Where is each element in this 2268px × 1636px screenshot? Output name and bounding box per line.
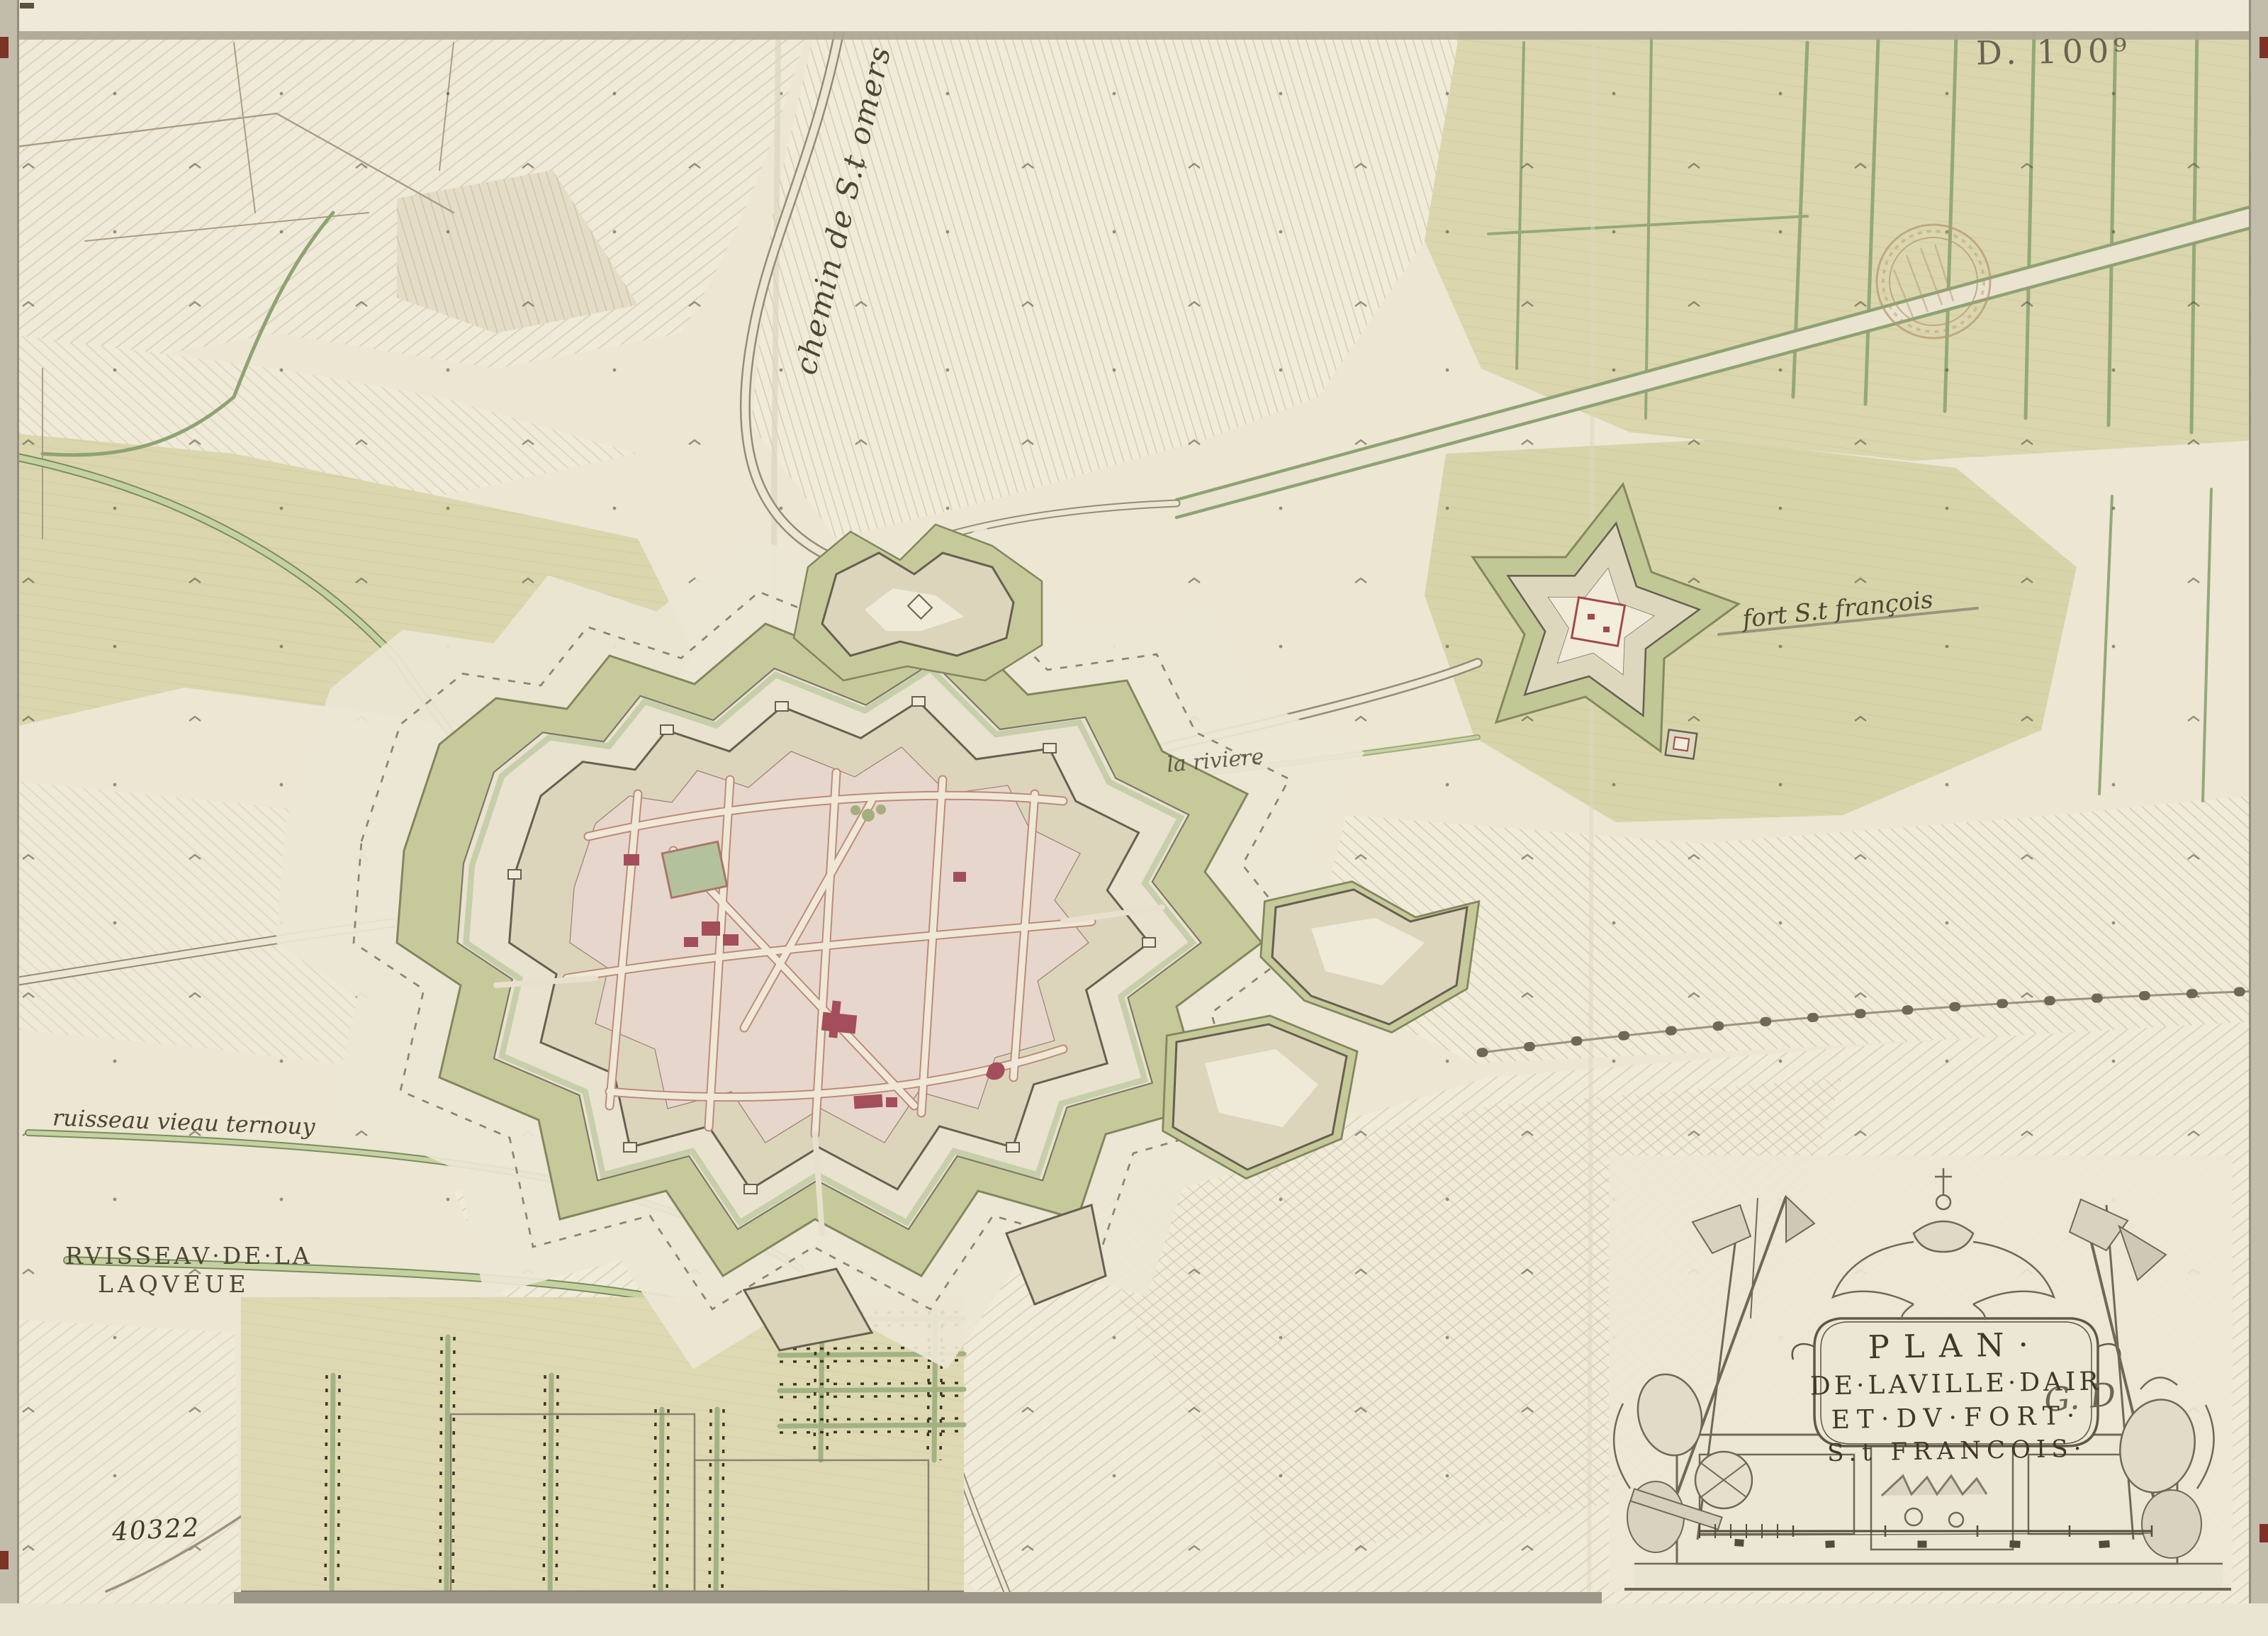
stream-label-laqueue-line2: LAQVEUE xyxy=(98,1270,250,1298)
cartouche-title: PLAN· DE·LAVILLE·DAIR ET·DV·FORT· S.t FR… xyxy=(1799,1324,2113,1468)
cartouche-title-line2: DE·LAVILLE·DAIR xyxy=(1800,1367,2112,1401)
gardens-orchards xyxy=(241,1297,964,1616)
shelfmark-inscription: D. 100⁹ xyxy=(1976,31,2133,72)
map-scan-page: { "labels": { "shelfmark": "D. 100⁹", "c… xyxy=(0,0,2268,1636)
stream-label-laqueue-line1: RVISSEAV·DE·LA xyxy=(65,1242,313,1270)
cartouche-title-line4: S.t FRANCOIS· xyxy=(1801,1434,2113,1468)
fort-citadel-court xyxy=(1571,598,1624,646)
inventory-number: 40322 xyxy=(111,1513,201,1547)
cartouche-title-line3: ET·DV·FORT· xyxy=(1800,1401,2113,1435)
cartouche-title-line1: PLAN· xyxy=(1799,1324,2111,1367)
